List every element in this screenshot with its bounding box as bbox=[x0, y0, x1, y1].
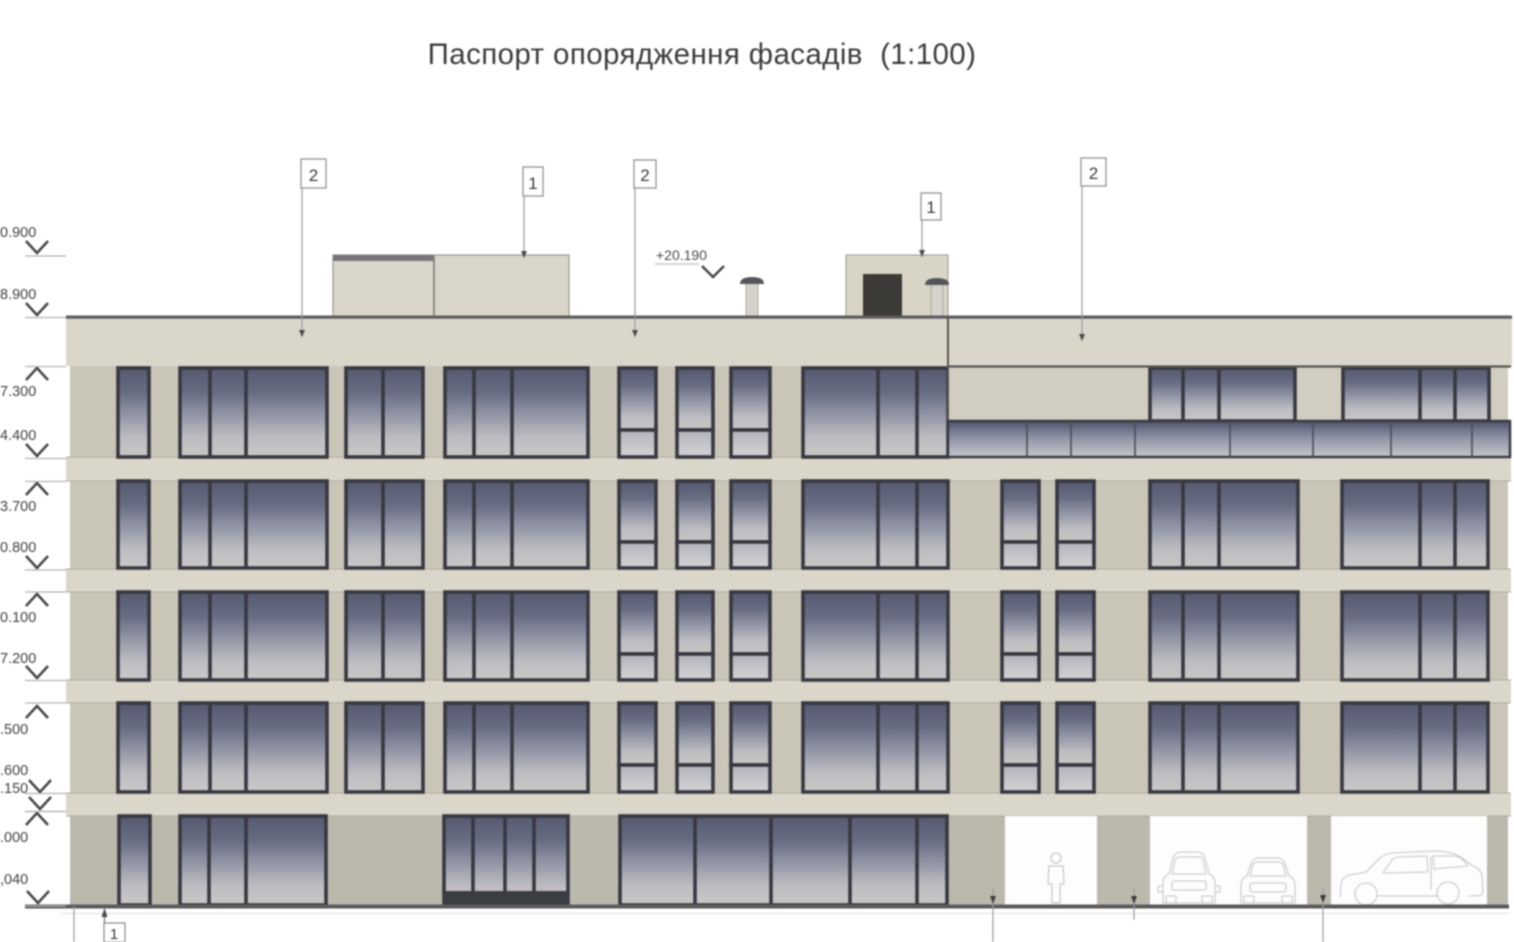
svg-text:0.900: 0.900 bbox=[0, 225, 36, 241]
svg-text:+20.190: +20.190 bbox=[656, 247, 707, 263]
svg-text:7.300: 7.300 bbox=[0, 384, 36, 400]
svg-text:2: 2 bbox=[640, 166, 649, 185]
svg-text:Паспорт опорядження фасадів (: Паспорт опорядження фасадів (1:100) bbox=[428, 38, 977, 71]
svg-text:0.100: 0.100 bbox=[0, 610, 36, 626]
svg-text:2: 2 bbox=[309, 166, 318, 185]
svg-text:4.400: 4.400 bbox=[0, 428, 36, 444]
svg-text:.150: .150 bbox=[0, 781, 28, 797]
svg-text:1: 1 bbox=[528, 174, 537, 193]
svg-text:1: 1 bbox=[110, 926, 118, 942]
svg-text:8.900: 8.900 bbox=[0, 287, 36, 303]
svg-text:.500: .500 bbox=[0, 722, 28, 738]
svg-text:1: 1 bbox=[926, 198, 935, 217]
svg-text:.000: .000 bbox=[0, 830, 28, 846]
svg-text:3.700: 3.700 bbox=[0, 499, 36, 515]
svg-text:2: 2 bbox=[1089, 164, 1098, 183]
svg-text:.600: .600 bbox=[0, 763, 28, 779]
svg-text:7.200: 7.200 bbox=[0, 651, 36, 667]
svg-text:0.800: 0.800 bbox=[0, 540, 36, 556]
svg-text:,040: ,040 bbox=[0, 872, 28, 888]
